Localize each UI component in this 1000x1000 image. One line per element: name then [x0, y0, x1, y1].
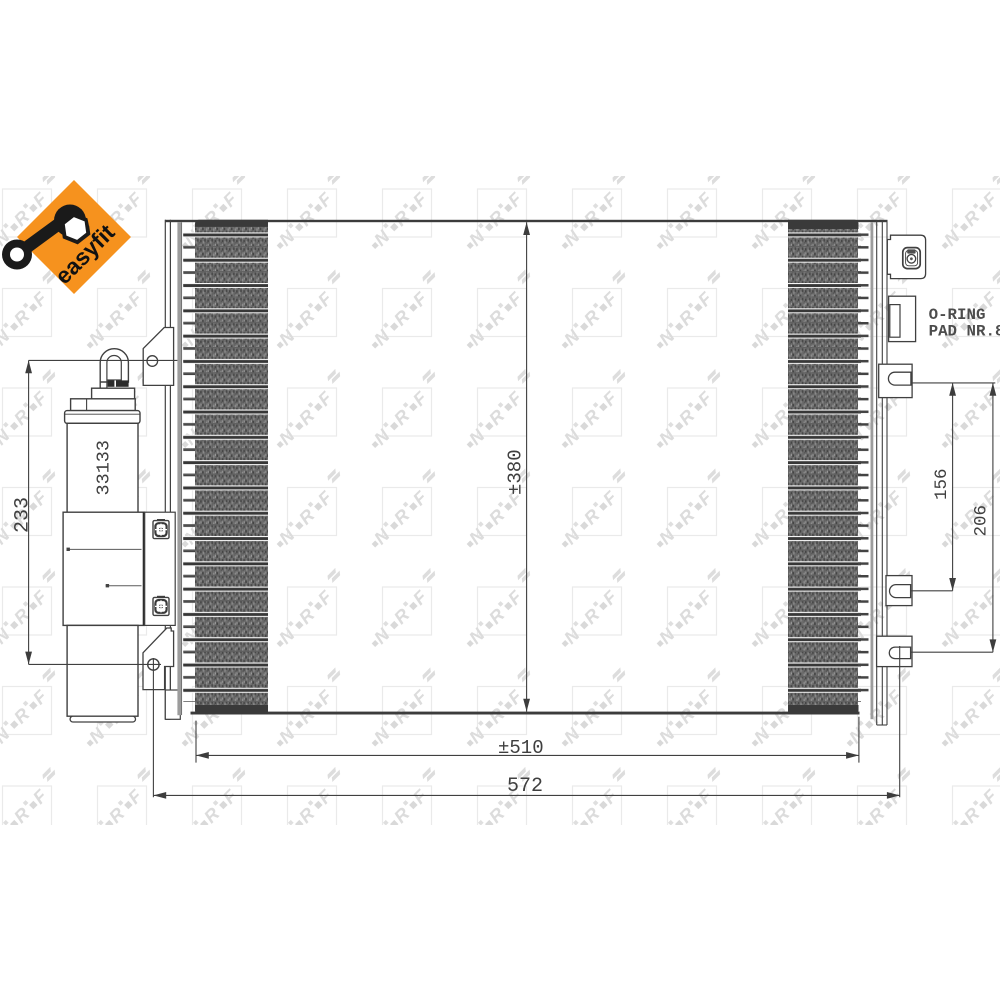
svg-text:±510: ±510 — [498, 737, 544, 759]
svg-text:572: 572 — [507, 775, 543, 798]
svg-text:156: 156 — [932, 468, 952, 500]
svg-text:206: 206 — [972, 505, 992, 537]
svg-text:33133: 33133 — [94, 440, 115, 496]
svg-text:233: 233 — [12, 497, 35, 533]
svg-text:O-RING: O-RING — [929, 306, 986, 324]
svg-text:PAD NR.8: PAD NR.8 — [929, 323, 1000, 341]
svg-text:±380: ±380 — [505, 449, 527, 495]
